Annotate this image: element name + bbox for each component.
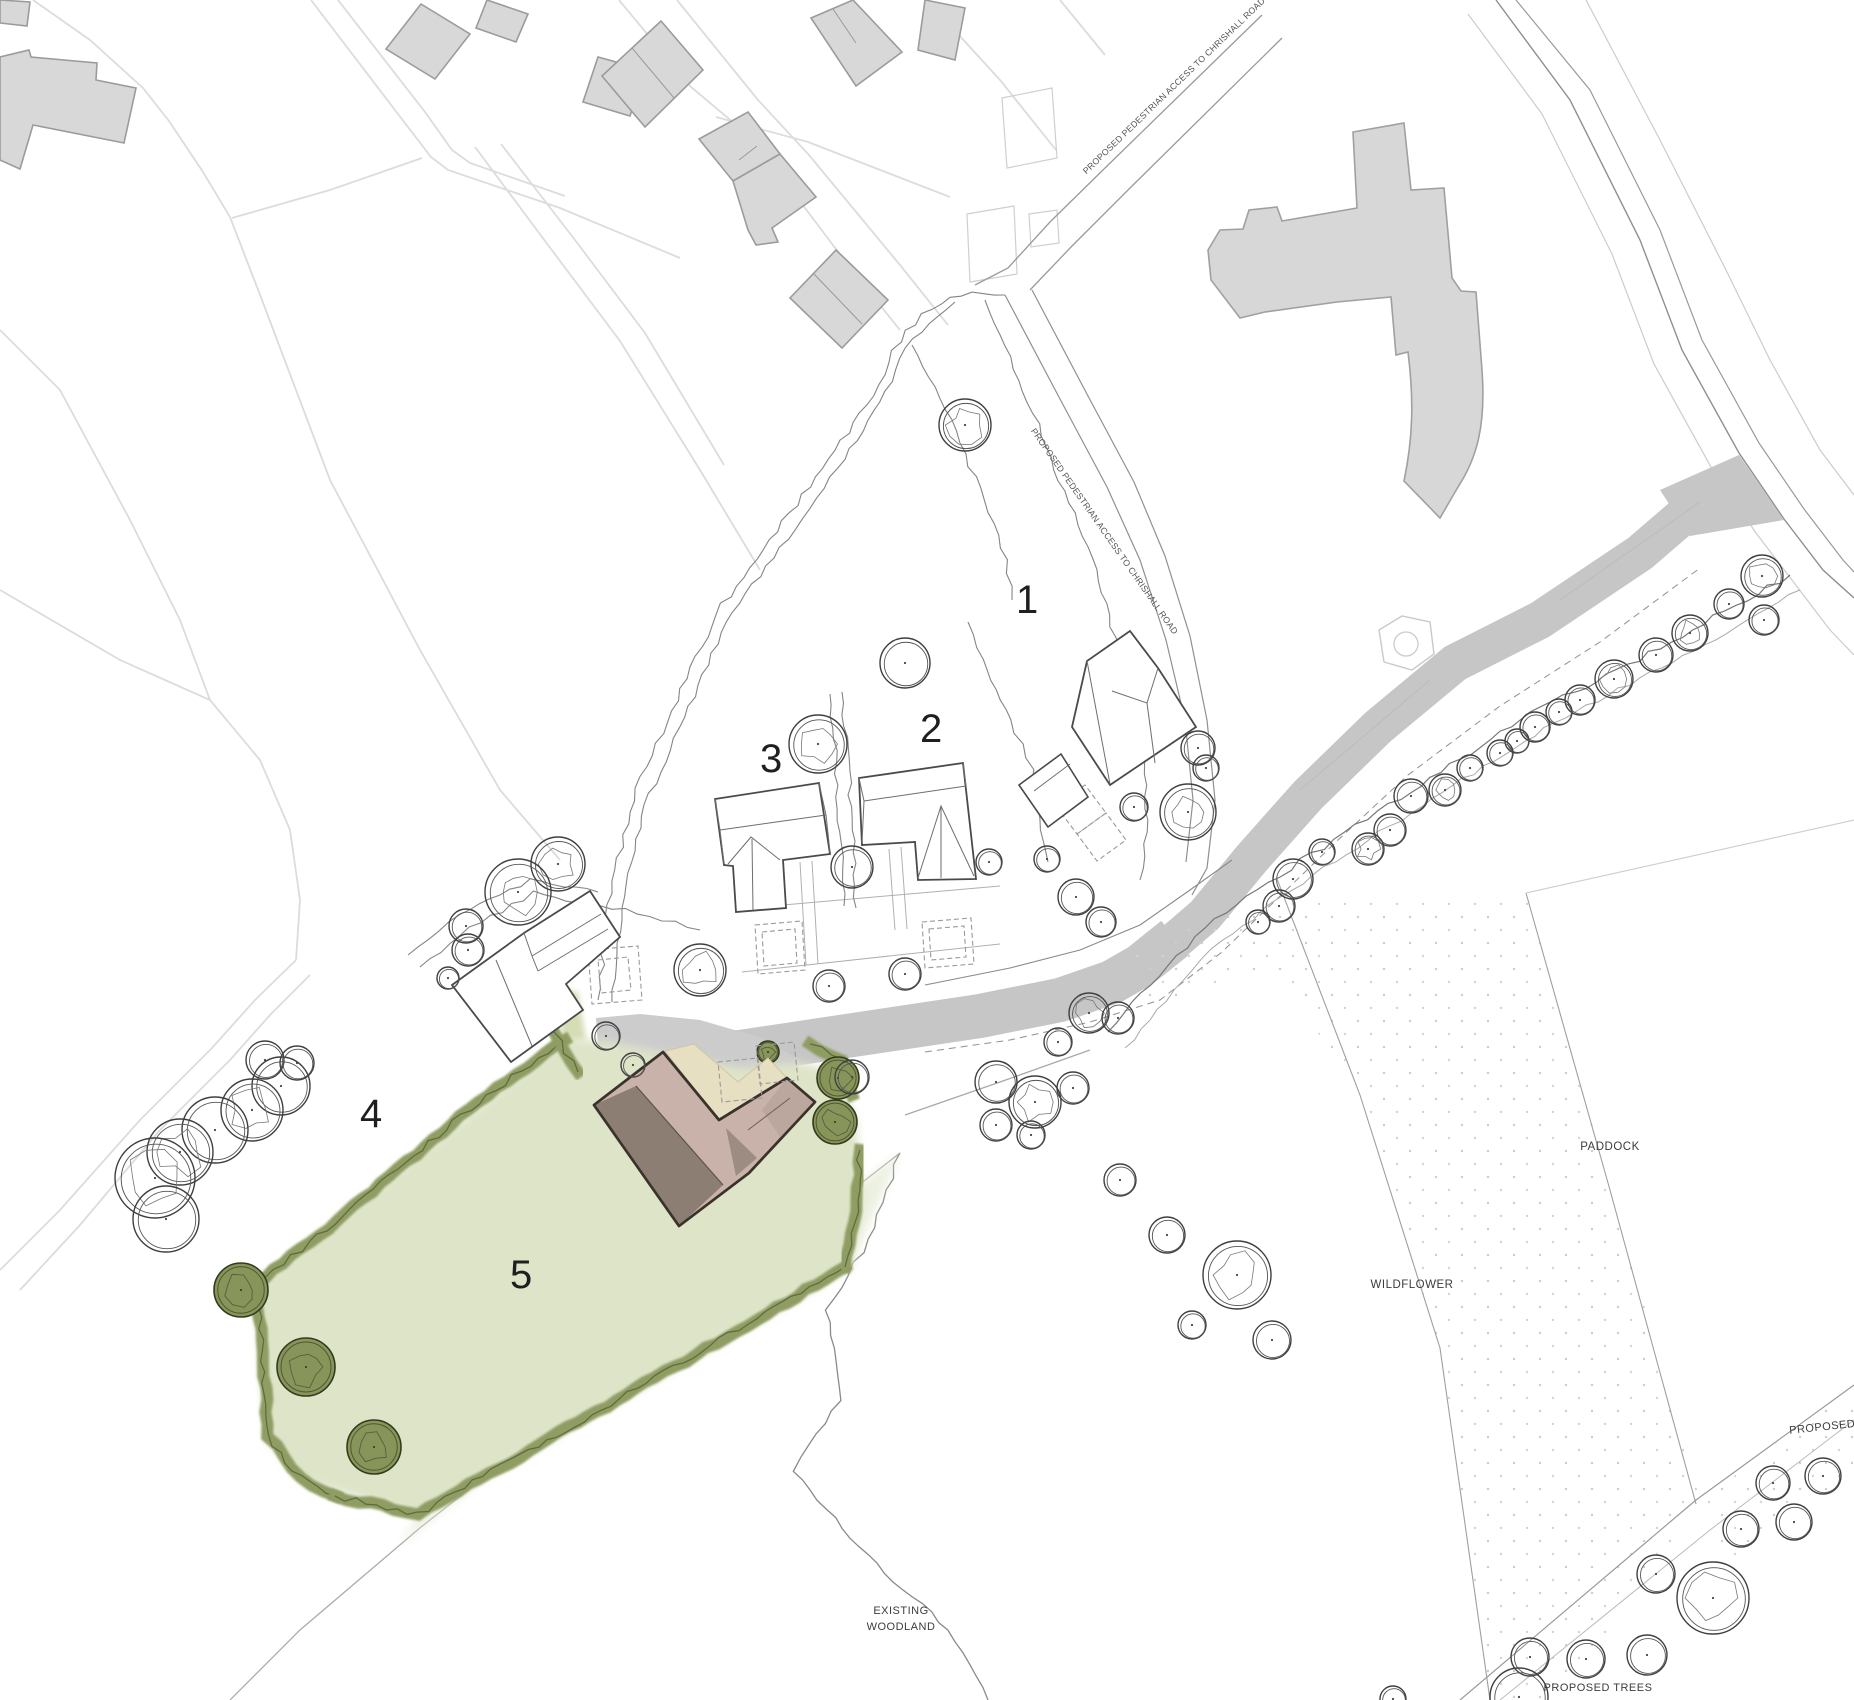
- svg-text:PADDOCK: PADDOCK: [1580, 1141, 1640, 1153]
- svg-text:2: 2: [920, 707, 942, 751]
- svg-text:3: 3: [760, 737, 782, 781]
- svg-text:EXISTING: EXISTING: [873, 1605, 928, 1617]
- svg-text:4: 4: [360, 1092, 382, 1136]
- svg-text:WOODLAND: WOODLAND: [867, 1621, 936, 1633]
- svg-text:1: 1: [1016, 578, 1038, 622]
- svg-text:5: 5: [510, 1253, 532, 1297]
- svg-text:WILDFLOWER: WILDFLOWER: [1371, 1279, 1454, 1291]
- svg-text:PROPOSED TREES: PROPOSED TREES: [1544, 1682, 1653, 1694]
